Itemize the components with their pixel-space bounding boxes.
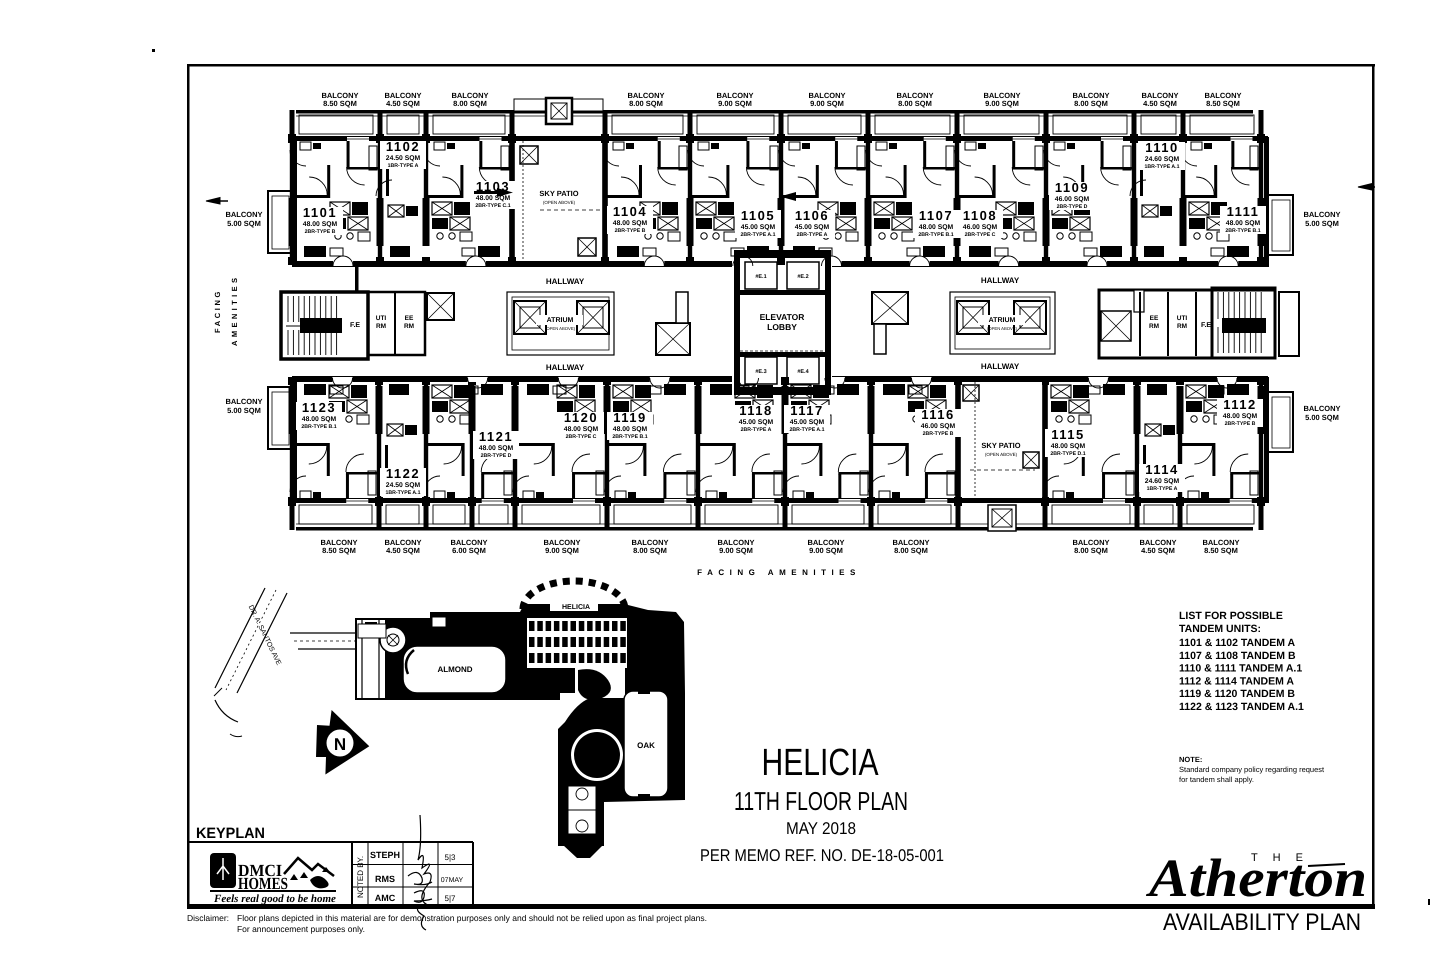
svg-text:9.00 SQM: 9.00 SQM <box>985 99 1019 108</box>
svg-text:45.00 SQM: 45.00 SQM <box>739 419 774 426</box>
svg-text:NOTED BY.: NOTED BY. <box>356 856 365 898</box>
svg-text:8.50 SQM: 8.50 SQM <box>1206 99 1240 108</box>
svg-text:SKY PATIO: SKY PATIO <box>981 441 1020 450</box>
svg-text:1102: 1102 <box>386 139 420 154</box>
svg-text:8.00 SQM: 8.00 SQM <box>898 99 932 108</box>
svg-text:9.00 SQM: 9.00 SQM <box>718 99 752 108</box>
svg-text:MAY 2018: MAY 2018 <box>786 819 856 838</box>
svg-text:(OPEN ABOVE): (OPEN ABOVE) <box>543 200 576 205</box>
svg-text:Standard company policy regard: Standard company policy regarding reques… <box>1179 765 1325 774</box>
svg-text:AMC: AMC <box>375 893 396 903</box>
svg-text:9.00 SQM: 9.00 SQM <box>810 99 844 108</box>
svg-text:UTI: UTI <box>1177 315 1188 322</box>
svg-text:48.00 SQM: 48.00 SQM <box>479 445 514 452</box>
svg-text:BALCONY: BALCONY <box>1303 210 1340 219</box>
svg-text:48.00 SQM: 48.00 SQM <box>1226 220 1261 227</box>
svg-text:2BR-TYPE A.1: 2BR-TYPE A.1 <box>741 232 776 238</box>
svg-text:1123: 1123 <box>302 400 336 415</box>
svg-text:EE: EE <box>405 315 414 322</box>
svg-text:KEYPLAN: KEYPLAN <box>196 825 265 842</box>
svg-text:RMS: RMS <box>375 874 395 884</box>
svg-text:NOTE:: NOTE: <box>1179 755 1202 764</box>
svg-text:48.00 SQM: 48.00 SQM <box>303 221 338 228</box>
svg-text:1101: 1101 <box>303 205 337 220</box>
svg-text:2BR-TYPE B: 2BR-TYPE B <box>923 431 954 437</box>
svg-text:2BR-TYPE C: 2BR-TYPE C <box>566 434 597 440</box>
svg-text:F.E: F.E <box>350 322 360 329</box>
svg-text:RM: RM <box>1177 323 1187 330</box>
svg-text:1122 & 1123 TANDEM A.1: 1122 & 1123 TANDEM A.1 <box>1179 701 1304 713</box>
svg-text:1107 & 1108 TANDEM B: 1107 & 1108 TANDEM B <box>1179 650 1296 662</box>
svg-text:2BR-TYPE A: 2BR-TYPE A <box>797 232 828 238</box>
svg-text:F.E: F.E <box>1201 322 1211 329</box>
svg-text:2BR-TYPE D.1: 2BR-TYPE D.1 <box>1050 451 1085 457</box>
svg-text:2BR-TYPE B: 2BR-TYPE B <box>615 228 646 234</box>
svg-text:2BR-TYPE B.1: 2BR-TYPE B.1 <box>301 424 336 430</box>
svg-text:1101 & 1102 TANDEM A: 1101 & 1102 TANDEM A <box>1179 637 1296 649</box>
svg-text:HALLWAY: HALLWAY <box>981 362 1020 371</box>
svg-text:6.00 SQM: 6.00 SQM <box>452 546 486 555</box>
svg-text:48.00 SQM: 48.00 SQM <box>919 224 954 231</box>
svg-text:FACING: FACING <box>213 289 222 333</box>
svg-text:48.00 SQM: 48.00 SQM <box>564 426 599 433</box>
svg-text:RM: RM <box>376 323 386 330</box>
svg-text:48.00 SQM: 48.00 SQM <box>476 195 511 202</box>
svg-text:11TH FLOOR PLAN: 11TH FLOOR PLAN <box>734 786 908 816</box>
svg-text:1115: 1115 <box>1051 427 1085 442</box>
svg-text:PER MEMO REF. NO. DE-18-05-001: PER MEMO REF. NO. DE-18-05-001 <box>700 846 944 865</box>
svg-text:Floor plans depicted in this m: Floor plans depicted in this material ar… <box>237 913 707 923</box>
svg-text:8.00 SQM: 8.00 SQM <box>1074 99 1108 108</box>
svg-text:8.00 SQM: 8.00 SQM <box>633 546 667 555</box>
svg-text:1108: 1108 <box>963 208 997 223</box>
svg-text:46.00 SQM: 46.00 SQM <box>921 423 956 430</box>
svg-text:STEPH: STEPH <box>370 850 400 860</box>
svg-text:1111: 1111 <box>1227 204 1260 219</box>
svg-text:8.00 SQM: 8.00 SQM <box>894 546 928 555</box>
svg-text:1119 & 1120 TANDEM B: 1119 & 1120 TANDEM B <box>1179 688 1295 700</box>
svg-text:2BR-TYPE B: 2BR-TYPE B <box>305 229 336 235</box>
svg-text:1BR-TYPE A: 1BR-TYPE A <box>1147 486 1178 492</box>
svg-text:Feels real good to be home: Feels real good to be home <box>213 893 336 905</box>
svg-text:24.60 SQM: 24.60 SQM <box>1145 478 1180 485</box>
svg-text:LIST FOR POSSIBLE: LIST FOR POSSIBLE <box>1179 610 1283 622</box>
svg-text:HALLWAY: HALLWAY <box>981 276 1020 285</box>
svg-text:24.50 SQM: 24.50 SQM <box>386 155 421 162</box>
svg-text:8.50 SQM: 8.50 SQM <box>323 99 357 108</box>
svg-text:ATRIUM: ATRIUM <box>989 317 1016 324</box>
svg-text:#E.3: #E.3 <box>755 369 766 375</box>
svg-text:#E.2: #E.2 <box>797 274 808 280</box>
svg-text:1112 & 1114 TANDEM A: 1112 & 1114 TANDEM A <box>1179 675 1294 687</box>
svg-text:4.50 SQM: 4.50 SQM <box>386 546 420 555</box>
svg-text:1104: 1104 <box>613 204 647 219</box>
svg-text:45.00 SQM: 45.00 SQM <box>795 224 830 231</box>
svg-text:UTI: UTI <box>376 315 387 322</box>
svg-text:1120: 1120 <box>564 410 598 425</box>
svg-text:1116: 1116 <box>921 407 955 422</box>
svg-text:2BR-TYPE A: 2BR-TYPE A <box>741 427 772 433</box>
svg-text:N: N <box>334 735 346 754</box>
svg-text:1109: 1109 <box>1055 180 1089 195</box>
svg-text:5|7: 5|7 <box>445 894 457 903</box>
svg-text:For announcement purposes only: For announcement purposes only. <box>237 924 365 934</box>
svg-text:Atherton: Atherton <box>1146 848 1367 908</box>
svg-text:48.00 SQM: 48.00 SQM <box>1051 443 1086 450</box>
svg-text:24.50 SQM: 24.50 SQM <box>386 482 421 489</box>
svg-text:1112: 1112 <box>1223 397 1257 412</box>
svg-text:HELICIA: HELICIA <box>762 742 880 784</box>
svg-text:1110: 1110 <box>1145 140 1179 155</box>
svg-text:4.50 SQM: 4.50 SQM <box>1143 99 1177 108</box>
svg-text:2BR-TYPE C.1: 2BR-TYPE C.1 <box>475 203 510 209</box>
svg-text:RM: RM <box>404 323 414 330</box>
svg-text:EE: EE <box>1150 315 1159 322</box>
svg-text:HELICIA: HELICIA <box>562 604 590 611</box>
svg-text:07MAY: 07MAY <box>441 877 464 884</box>
svg-text:1114: 1114 <box>1145 462 1179 477</box>
svg-text:8.00 SQM: 8.00 SQM <box>453 99 487 108</box>
svg-text:2BR-TYPE B.1: 2BR-TYPE B.1 <box>1225 228 1260 234</box>
svg-text:BALCONY: BALCONY <box>225 397 262 406</box>
svg-text:Disclaimer:: Disclaimer: <box>187 913 229 923</box>
svg-text:46.00 SQM: 46.00 SQM <box>1055 196 1090 203</box>
svg-text:RM: RM <box>1149 323 1159 330</box>
svg-text:5.00 SQM: 5.00 SQM <box>1305 413 1339 422</box>
svg-text:1BR-TYPE A.1: 1BR-TYPE A.1 <box>386 490 421 496</box>
svg-text:48.00 SQM: 48.00 SQM <box>302 416 337 423</box>
svg-text:45.00 SQM: 45.00 SQM <box>741 224 776 231</box>
svg-text:2BR-TYPE C: 2BR-TYPE C <box>965 232 996 238</box>
svg-text:2BR-TYPE B.1: 2BR-TYPE B.1 <box>918 232 953 238</box>
svg-text:BALCONY: BALCONY <box>1303 404 1340 413</box>
svg-text:1122: 1122 <box>386 466 420 481</box>
svg-text:(OPEN ABOVE): (OPEN ABOVE) <box>985 452 1018 457</box>
svg-text:9.00 SQM: 9.00 SQM <box>545 546 579 555</box>
svg-text:BALCONY: BALCONY <box>225 210 262 219</box>
svg-text:1BR-TYPE A: 1BR-TYPE A <box>388 163 419 169</box>
svg-text:SKY PATIO: SKY PATIO <box>539 189 578 198</box>
svg-text:2BR-TYPE D: 2BR-TYPE D <box>481 453 512 459</box>
svg-text:ATRIUM: ATRIUM <box>547 317 574 324</box>
svg-text:9.00 SQM: 9.00 SQM <box>719 546 753 555</box>
svg-text:48.00 SQM: 48.00 SQM <box>613 426 648 433</box>
svg-text:48.00 SQM: 48.00 SQM <box>613 220 648 227</box>
svg-text:(OPEN ABOVE): (OPEN ABOVE) <box>987 326 1018 331</box>
svg-text:5.00 SQM: 5.00 SQM <box>227 406 261 415</box>
svg-text:1105: 1105 <box>741 208 775 223</box>
svg-text:5.00 SQM: 5.00 SQM <box>1305 219 1339 228</box>
svg-text:1110 & 1111 TANDEM A.1: 1110 & 1111 TANDEM A.1 <box>1179 663 1302 675</box>
svg-text:(OPEN ABOVE): (OPEN ABOVE) <box>545 326 576 331</box>
svg-text:#E.4: #E.4 <box>797 369 809 375</box>
svg-text:2BR-TYPE A.1: 2BR-TYPE A.1 <box>790 427 825 433</box>
svg-text:5|3: 5|3 <box>445 853 457 862</box>
svg-text:1118: 1118 <box>739 403 773 418</box>
svg-text:FACING AMENITIES: FACING AMENITIES <box>697 568 861 577</box>
svg-text:5.00 SQM: 5.00 SQM <box>227 219 261 228</box>
svg-text:48.00 SQM: 48.00 SQM <box>1223 413 1258 420</box>
svg-text:TANDEM UNITS:: TANDEM UNITS: <box>1179 623 1261 635</box>
svg-text:1121: 1121 <box>479 429 513 444</box>
svg-text:1106: 1106 <box>795 208 829 223</box>
svg-text:1107: 1107 <box>919 208 953 223</box>
svg-text:OAK: OAK <box>637 741 655 750</box>
svg-text:ALMOND: ALMOND <box>437 665 472 674</box>
svg-text:1117: 1117 <box>790 403 824 418</box>
svg-text:ELEVATOR: ELEVATOR <box>760 312 805 322</box>
svg-text:HALLWAY: HALLWAY <box>546 363 585 372</box>
svg-text:24.60 SQM: 24.60 SQM <box>1145 156 1180 163</box>
svg-text:8.50 SQM: 8.50 SQM <box>1204 546 1238 555</box>
svg-text:HALLWAY: HALLWAY <box>546 277 585 286</box>
svg-text:4.50 SQM: 4.50 SQM <box>1141 546 1175 555</box>
svg-text:1BR-TYPE A.1: 1BR-TYPE A.1 <box>1145 164 1180 170</box>
svg-text:2BR-TYPE B: 2BR-TYPE B <box>1225 421 1256 427</box>
svg-text:8.00 SQM: 8.00 SQM <box>1074 546 1108 555</box>
svg-text:8.50 SQM: 8.50 SQM <box>322 546 356 555</box>
svg-text:9.00 SQM: 9.00 SQM <box>809 546 843 555</box>
svg-text:AVAILABILITY PLAN: AVAILABILITY PLAN <box>1163 909 1361 936</box>
svg-text:2BR-TYPE D: 2BR-TYPE D <box>1057 204 1088 210</box>
svg-text:for tandem shall apply.: for tandem shall apply. <box>1179 775 1254 784</box>
svg-text:46.00 SQM: 46.00 SQM <box>963 224 998 231</box>
svg-text:45.00 SQM: 45.00 SQM <box>790 419 825 426</box>
svg-text:#E.1: #E.1 <box>755 274 766 280</box>
svg-text:1119: 1119 <box>613 410 647 425</box>
svg-text:AMENITIES: AMENITIES <box>230 275 239 346</box>
svg-text:LOBBY: LOBBY <box>767 322 797 332</box>
svg-text:2BR-TYPE B.1: 2BR-TYPE B.1 <box>612 434 647 440</box>
svg-text:8.00 SQM: 8.00 SQM <box>629 99 663 108</box>
svg-text:4.50 SQM: 4.50 SQM <box>386 99 420 108</box>
